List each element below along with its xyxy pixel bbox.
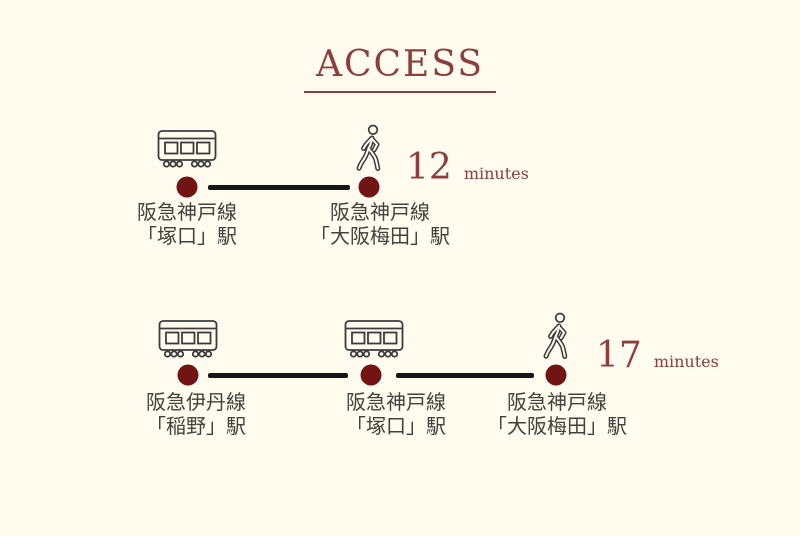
page-title: ACCESS bbox=[0, 44, 800, 93]
line-name: 阪急神戸線 bbox=[346, 392, 446, 416]
station-name: 「大阪梅田」駅 bbox=[487, 416, 627, 440]
train-icon bbox=[343, 316, 405, 362]
station-dot bbox=[178, 365, 199, 386]
station-dot bbox=[177, 177, 198, 198]
page-title-text: ACCESS bbox=[304, 44, 496, 93]
station-name: 「塚口」駅 bbox=[346, 416, 446, 440]
route-line bbox=[396, 373, 534, 378]
route-line bbox=[208, 185, 350, 190]
train-icon bbox=[157, 316, 219, 362]
route-line bbox=[208, 373, 348, 378]
line-name: 阪急神戸線 bbox=[487, 392, 627, 416]
station-label: 阪急神戸線 「大阪梅田」駅 bbox=[310, 202, 450, 249]
station-name: 「大阪梅田」駅 bbox=[310, 226, 450, 250]
walking-person-icon bbox=[352, 124, 388, 174]
station-label: 阪急伊丹線 「稲野」駅 bbox=[146, 392, 246, 439]
train-icon bbox=[156, 126, 218, 172]
duration: 12 minutes bbox=[406, 150, 529, 186]
line-name: 阪急伊丹線 bbox=[146, 392, 246, 416]
duration-value: 17 bbox=[596, 338, 642, 374]
duration-value: 12 bbox=[406, 150, 452, 186]
station-label: 阪急神戸線 「塚口」駅 bbox=[346, 392, 446, 439]
duration-unit: minutes bbox=[464, 164, 529, 183]
station-dot bbox=[546, 365, 567, 386]
line-name: 阪急神戸線 bbox=[310, 202, 450, 226]
station-dot bbox=[361, 365, 382, 386]
line-name: 阪急神戸線 bbox=[137, 202, 237, 226]
station-dot bbox=[359, 177, 380, 198]
duration: 17 minutes bbox=[596, 338, 719, 374]
access-page: ACCESS bbox=[0, 0, 800, 536]
station-label: 阪急神戸線 「塚口」駅 bbox=[137, 202, 237, 249]
duration-unit: minutes bbox=[654, 352, 719, 371]
station-label: 阪急神戸線 「大阪梅田」駅 bbox=[487, 392, 627, 439]
station-name: 「塚口」駅 bbox=[137, 226, 237, 250]
station-name: 「稲野」駅 bbox=[146, 416, 246, 440]
walking-person-icon bbox=[539, 312, 575, 362]
